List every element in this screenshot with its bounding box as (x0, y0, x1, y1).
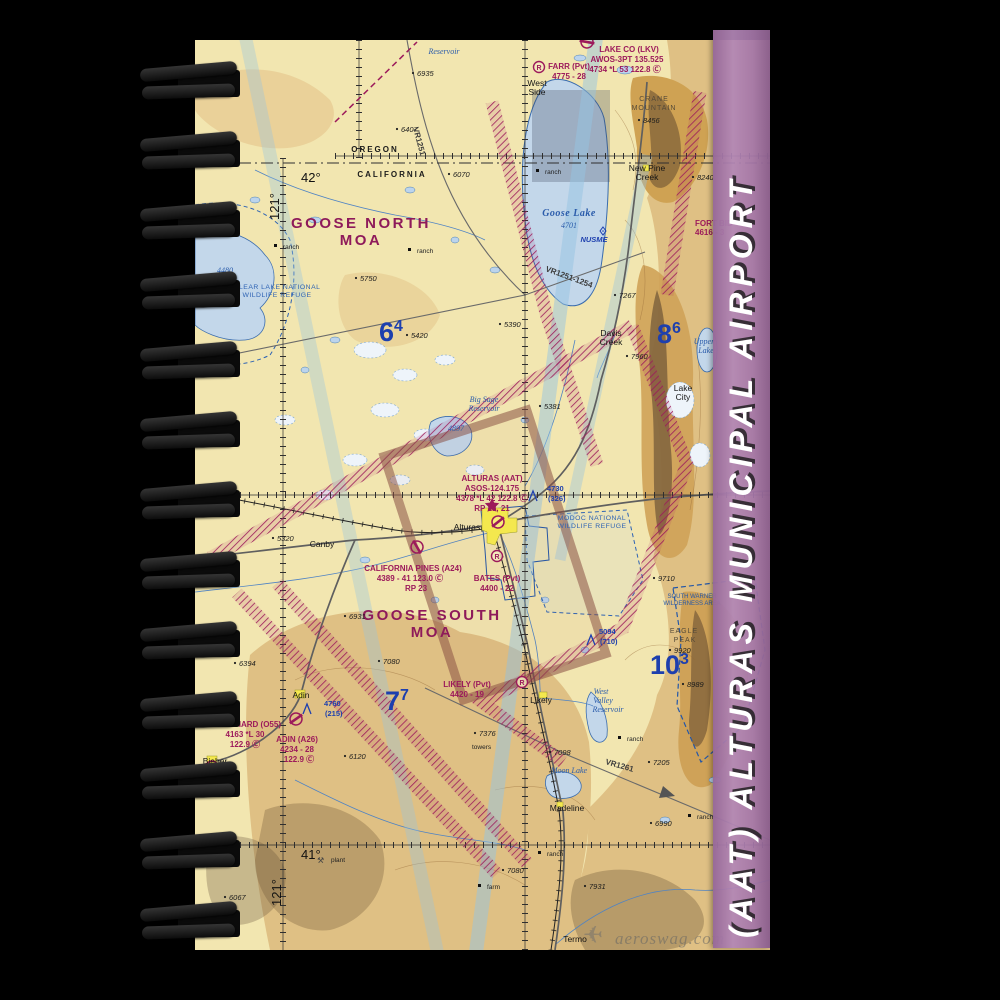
strip-title: (AAT) ALTURAS MUNICIPAL AIRPORT (723, 174, 760, 938)
map-label: GOOSE NORTH (291, 215, 431, 232)
map-label: Upper (694, 337, 715, 346)
map-label: R (519, 680, 524, 687)
map-label: Side (528, 87, 545, 97)
photo-background: ✈ Reservoir69356407VR1251WestSideFARR (P… (0, 0, 1000, 1000)
ranch-marker (274, 244, 277, 247)
map-label: WILDLIFE REFUGE (242, 292, 311, 299)
map-label: 122.9 Ⓒ (230, 739, 260, 749)
map-label: PEAK (674, 637, 697, 644)
spot-elevation-dot (653, 577, 655, 579)
map-label: 8240 (697, 173, 715, 182)
ranch-marker (408, 248, 411, 251)
map-label: 5390 (504, 320, 522, 329)
map-label: MODOC NATIONAL (558, 515, 626, 522)
map-label: 4730 (547, 484, 564, 493)
map-label: Likely (530, 695, 552, 705)
map-label: 8456 (643, 116, 661, 125)
spot-elevation-dot (224, 896, 226, 898)
map-label: 4480 (217, 266, 233, 275)
spot-elevation-dot (638, 119, 640, 121)
map-label: WILDLIFE REFUGE (557, 523, 626, 530)
spot-elevation-dot (272, 537, 274, 539)
map-label: RP 13, 21 (474, 504, 510, 513)
map-label: ranch (545, 169, 562, 176)
map-label: 5420 (411, 331, 429, 340)
map-label: R (536, 65, 541, 72)
spot-elevation-dot (584, 885, 586, 887)
map-label: 7080 (507, 866, 525, 875)
map-label: Goose Lake (542, 208, 596, 219)
map-label: Alturas (454, 522, 480, 532)
map-label: plant (331, 857, 345, 864)
sectional-chart: ✈ Reservoir69356407VR1251WestSideFARR (P… (195, 40, 770, 950)
map-label: 6990 (655, 819, 673, 828)
map-label: 8989 (687, 680, 705, 689)
map-label: 7931 (589, 882, 606, 891)
map-label: LIKELY (Pvt) (443, 680, 491, 689)
map-label: LAKE CO (LKV) (599, 45, 659, 54)
spot-elevation-dot (412, 72, 414, 74)
map-label: Reservoir (467, 404, 500, 413)
map-label: Lake (697, 346, 714, 355)
map-label: Madeline (550, 803, 585, 813)
map-label: Reservoir (427, 47, 460, 56)
map-label: ranch (697, 814, 714, 821)
spot-elevation-dot (234, 662, 236, 664)
spot-elevation-dot (448, 173, 450, 175)
map-label: 7205 (653, 758, 671, 767)
spot-elevation-dot (499, 323, 501, 325)
map-label: AWOS-3PT 135.525 (591, 55, 664, 64)
map-label: 6067 (229, 893, 247, 902)
map-label: CALIFORNIA PINES (A24) (364, 564, 462, 573)
map-label: farm (487, 884, 500, 891)
map-label: 4389 - 41 123.0 Ⓒ (377, 573, 443, 583)
map-label: SOUTH WARNER (667, 594, 717, 600)
spot-elevation-dot (539, 405, 541, 407)
map-label: 5750 (360, 274, 378, 283)
map-label: 121° (267, 193, 282, 220)
map-label: 6394 (239, 659, 256, 668)
spot-elevation-dot (650, 822, 652, 824)
title-strip: (AAT) ALTURAS MUNICIPAL AIRPORT (713, 30, 770, 948)
spot-elevation-dot (355, 277, 357, 279)
map-label: 5320 (277, 534, 295, 543)
map-label: 4163 *L 30 (226, 730, 266, 739)
map-label: ranch (627, 736, 644, 743)
map-label: OREGON (351, 145, 399, 154)
map-label: 4400 - 22 (480, 584, 514, 593)
map-label: 7960 (631, 352, 649, 361)
spot-elevation-dot (549, 751, 551, 753)
map-label: 42° (301, 170, 321, 185)
map-label: 4897 (448, 424, 465, 433)
map-label: 7376 (479, 729, 497, 738)
map-label: (326) (548, 494, 566, 503)
map-label: 5381 (544, 402, 561, 411)
map-label: 5094 (599, 627, 617, 636)
map-label: NUSME (580, 235, 608, 244)
map-label: EAGLE (670, 628, 698, 635)
map-label: 6931 (349, 612, 366, 621)
map-label: RP 23 (405, 584, 428, 593)
map-label: CALIFORNIA (357, 170, 426, 179)
map-label: BATES (Pvt) (474, 574, 521, 583)
spot-elevation-dot (692, 176, 694, 178)
map-label: 9710 (658, 574, 676, 583)
spot-elevation-dot (682, 683, 684, 685)
map-label: 4378 *L 42 122.8 Ⓒ (456, 493, 527, 503)
map-label: 122.9 Ⓒ (284, 754, 314, 764)
map-label: Bieber (203, 756, 228, 766)
map-label: 6120 (349, 752, 367, 761)
map-label: 4234 - 28 (280, 745, 314, 754)
spot-elevation-dot (406, 334, 408, 336)
spot-elevation-dot (474, 732, 476, 734)
spot-elevation-dot (502, 869, 504, 871)
notebook-cover: ✈ Reservoir69356407VR1251WestSideFARR (P… (195, 40, 770, 950)
map-label: MOA (411, 624, 454, 641)
spot-elevation-dot (344, 755, 346, 757)
photo-shadow (532, 90, 610, 182)
map-label: Canby (310, 539, 335, 549)
ranch-marker (618, 736, 621, 739)
map-label: MOA (340, 232, 383, 249)
map-label: Reservoir (591, 705, 624, 714)
map-label: 7267 (619, 291, 637, 300)
map-label: Adin (292, 690, 309, 700)
map-label: ASOS-124.175 (465, 484, 520, 493)
map-label: 6070 (453, 170, 471, 179)
map-label: Termo (563, 934, 587, 944)
map-label: MOUNTAIN (632, 105, 677, 112)
map-label: Valley (593, 696, 613, 705)
map-label: ALTURAS (AAT) (461, 474, 522, 483)
map-label: 7080 (383, 657, 401, 666)
map-label: R (494, 554, 499, 561)
map-label: 4420 - 19 (450, 690, 484, 699)
map-label: City (676, 392, 691, 402)
spot-elevation-dot (648, 761, 650, 763)
map-label: 7098 (554, 748, 572, 757)
map-label: 6935 (417, 69, 435, 78)
spot-elevation-dot (614, 294, 616, 296)
ranch-marker (478, 884, 481, 887)
spot-elevation-dot (344, 615, 346, 617)
map-label: 4775 - 28 (552, 72, 586, 81)
map-label: ranch (417, 248, 434, 255)
map-label: CLEAR LAKE NATIONAL (234, 284, 321, 291)
map-label: FARR (Pvt) (548, 62, 590, 71)
map-label: West (594, 687, 610, 696)
ranch-marker (538, 851, 541, 854)
map-label: towers (472, 744, 492, 751)
map-label: ⚒ (317, 856, 324, 865)
ranch-marker (688, 814, 691, 817)
map-label: Moon Lake (550, 766, 588, 775)
map-label: aeroswag.com (615, 929, 725, 948)
spot-elevation-dot (396, 128, 398, 130)
spot-elevation-dot (378, 660, 380, 662)
map-label: (710) (600, 637, 618, 646)
map-label: SOUTHARD (O55) (213, 720, 281, 729)
ranch-marker (536, 169, 539, 172)
map-label: 4734 *L 53 122.8 Ⓒ (589, 64, 660, 74)
map-label: Creek (600, 337, 623, 347)
map-label: ranch (283, 244, 300, 251)
map-label: (215) (325, 709, 343, 718)
map-label: 4760 (324, 699, 341, 708)
map-label: GOOSE SOUTH (362, 607, 501, 624)
map-label: ranch (547, 851, 564, 858)
map-label: ADIN (A26) (276, 735, 318, 744)
map-label: 121° (269, 879, 284, 906)
map-label: Creek (636, 172, 659, 182)
map-label: 4701 (561, 221, 577, 230)
map-label: Big Sage (470, 395, 499, 404)
map-label: CRANE (639, 96, 669, 103)
spot-elevation-dot (626, 355, 628, 357)
